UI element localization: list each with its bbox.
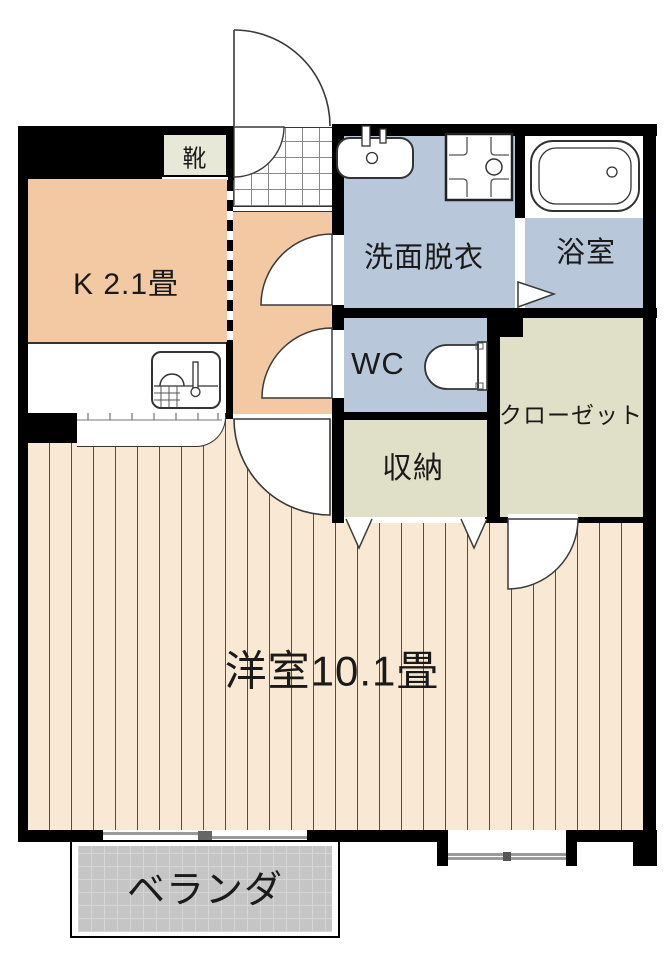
wall-window-jamb-l — [437, 830, 448, 866]
kitchen-counter-front — [77, 413, 226, 447]
bathroom-tub-area — [525, 136, 643, 218]
wall-kitchen-hall — [226, 342, 233, 419]
wall-entry-left — [228, 126, 234, 180]
wall-wc-bottom — [332, 412, 490, 420]
kitchen-hall-dashed-line — [227, 180, 233, 342]
wall-right — [643, 126, 656, 842]
room-washroom-floor — [344, 136, 515, 308]
entrance-door-swing — [234, 30, 330, 126]
wall-bath-west — [515, 124, 525, 218]
opening-hall-main — [233, 414, 332, 419]
label-closet: クローゼット — [499, 396, 643, 430]
label-bathroom: 浴室 — [556, 229, 616, 271]
wall-window-jamb-r — [566, 830, 577, 866]
wall-closet-corner — [487, 310, 523, 337]
opening-storage-door — [344, 517, 487, 523]
wall-storage-bottom-e — [485, 517, 508, 523]
wall-kitchen-bulge — [18, 413, 77, 443]
wall-washroom-west-1 — [332, 136, 344, 235]
label-washroom: 洗面脱衣 — [364, 234, 484, 276]
sliding-door-rail-left — [103, 832, 205, 835]
label-kitchen: K 2.1畳 — [73, 259, 179, 303]
floorplan: 靴 K 2.1畳 洗面脱衣 浴室 WC クローゼット 収納 洋室10.1畳 ベラ… — [0, 0, 669, 960]
opening-closet-door — [508, 514, 578, 523]
hallway-floor — [233, 212, 332, 419]
label-veranda: ベランダ — [127, 859, 283, 914]
wall-corner-block — [633, 830, 657, 866]
label-main-room: 洋室10.1畳 — [225, 638, 440, 699]
wall-closet-bottom — [578, 517, 643, 523]
entrance-tile-floor — [233, 127, 332, 206]
sliding-door-rail-right — [205, 836, 307, 839]
bath-door-gap — [515, 218, 525, 308]
label-wc: WC — [351, 346, 405, 382]
sliding-door-center-mark — [198, 831, 212, 840]
opening-washroom-door — [332, 235, 344, 305]
label-storage: 収納 — [382, 443, 444, 487]
wall-left — [18, 126, 28, 842]
entrance-step — [233, 206, 332, 212]
wall-above-shoe — [162, 126, 228, 133]
label-shoe-cabinet: 靴 — [183, 139, 208, 174]
wall-top-right — [332, 124, 657, 136]
kitchen-counter — [28, 342, 226, 413]
opening-wc-door — [332, 328, 344, 398]
window-center-mark — [503, 852, 511, 861]
wall-top-left-block — [18, 126, 162, 179]
